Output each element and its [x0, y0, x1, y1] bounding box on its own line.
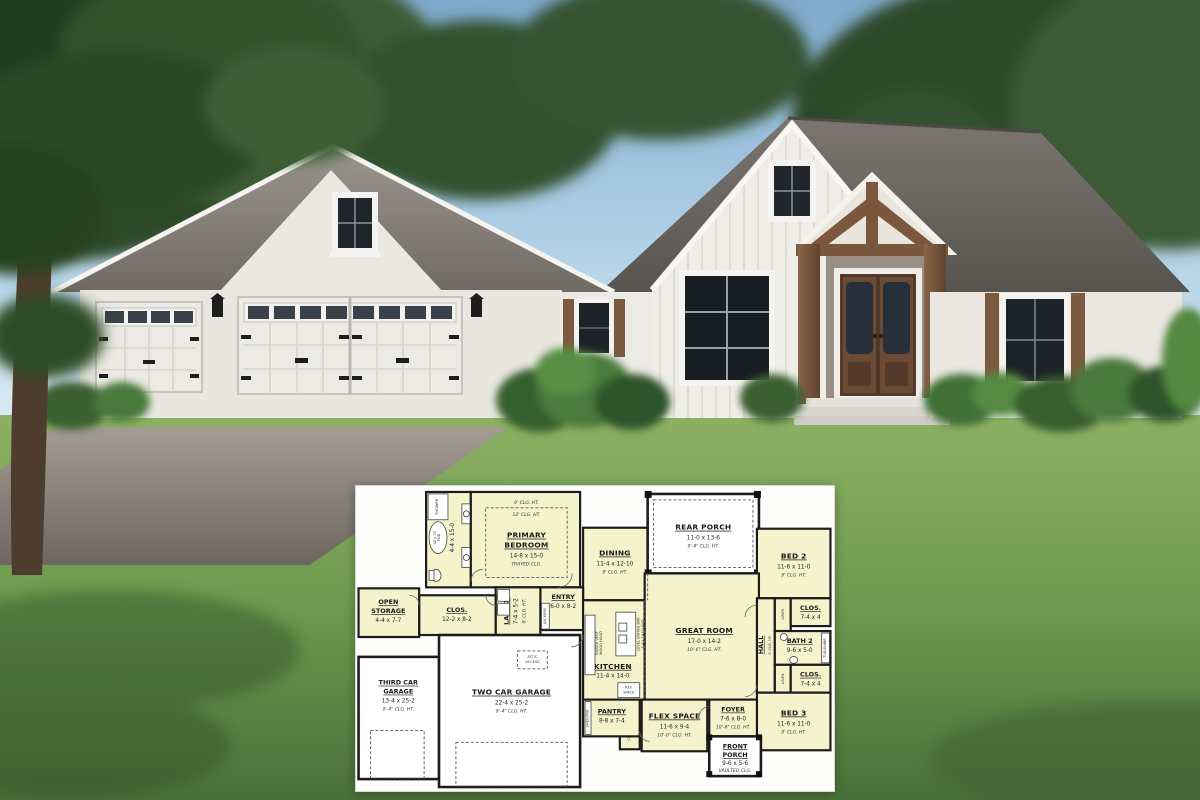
- room-dims: 4-4 x 15-0: [450, 523, 456, 553]
- front-door: [834, 268, 922, 398]
- shower-label: SHOWER: [435, 498, 439, 515]
- room-name: ENTRY: [551, 593, 575, 601]
- hall: HALL 9' CLG. HT.: [757, 598, 775, 692]
- room-name: FOYER: [721, 706, 745, 714]
- room-dims: 7-6 x 8-0: [720, 716, 746, 722]
- double-garage-door: [238, 297, 462, 394]
- center-window: [679, 270, 775, 386]
- room-closet-primary: CLOS. 12-2 x 8-2: [419, 595, 495, 635]
- room-name: GREAT ROOM: [676, 626, 734, 635]
- lockers-label: LOCKERS: [543, 607, 547, 624]
- room-name: TWO CAR GARAGE: [472, 688, 551, 697]
- room-name: BATH 2: [787, 637, 813, 645]
- tray-ceiling-note: 12' CLG. HT.: [513, 512, 541, 518]
- single-garage-door: [96, 302, 202, 392]
- eating-bar-label: LEVEL EATING BAR: [637, 617, 641, 651]
- room-dims: 17-0 x 14-2: [688, 639, 721, 645]
- room-name: LINEN: [781, 673, 785, 684]
- room-dims: 4-4 x 7-7: [375, 618, 401, 624]
- ceiling-note: 9' CLG. HT.: [514, 500, 539, 506]
- garage-attic-window: [330, 192, 380, 257]
- room-foyer: FOYER 7-6 x 8-0 10'-6" CLG. HT.: [709, 700, 757, 737]
- floor-plan: BATH 4-4 x 15-0 SHOWER 42 x 72 TUB 9' CL…: [355, 485, 835, 792]
- room-name: OPEN: [378, 598, 398, 606]
- closet-bed3: CLOS. 7-4 x 4: [791, 665, 831, 693]
- room-pantry: PANTRY 8-8 x 7-4 SHELVING: [583, 700, 640, 737]
- room-great-room: GREAT ROOM 17-0 x 14-2 10'-6" CLG. HT.: [645, 573, 759, 699]
- room-note: 10'-6" CLG. HT.: [657, 732, 692, 738]
- hood-label2: WOOD HOOD: [599, 631, 603, 655]
- room-dims: 7-4 x 5-2: [514, 598, 520, 624]
- room-dims: 22-4 x 25-2: [495, 701, 528, 707]
- room-laundry: LAUND. 7-4 x 5-2 9' CLG. HT.: [496, 587, 541, 635]
- room-flex-space: FLEX SPACE 11-6 x 9-4 10'-6" CLG. HT.: [642, 700, 708, 752]
- room-dims: 11-6 x 11-0: [777, 721, 810, 727]
- room-dims: 9-6 x 5-0: [787, 648, 813, 654]
- two-car-garage: TWO CAR GARAGE 22-4 x 25-2 9'-4" CLG. HT…: [439, 635, 580, 787]
- center-attic-window: [768, 160, 816, 222]
- room-dims: 11-4 x 12-10: [596, 561, 633, 567]
- front-porch: FRONT PORCH 9-6 x 5-6 VAULTED CLG.: [706, 734, 762, 777]
- room-name: BED 2: [781, 552, 807, 561]
- room-dims: 8-8 x 7-4: [599, 718, 625, 724]
- room-bed2: BED 2 11-6 x 11-0 9' CLG. HT.: [757, 529, 831, 599]
- room-name: THIRD CAR: [379, 679, 418, 687]
- room-primary-bedroom: 9' CLG. HT. 12' CLG. HT. PRIMARY BEDROOM…: [471, 492, 580, 587]
- screenshot-root: BATH 4-4 x 15-0 SHOWER 42 x 72 TUB 9' CL…: [0, 0, 1200, 800]
- room-note: 10'-6" CLG. HT.: [716, 724, 751, 730]
- attic-access-label: ATTIC: [527, 655, 538, 659]
- mid-window-shutter-right: [614, 299, 625, 357]
- room-note: 9' CLG. HT.: [768, 635, 772, 655]
- room-note: 9' CLG. HT.: [521, 598, 527, 623]
- room-dims: 7-4 x 4: [801, 682, 821, 688]
- room-name: FRONT: [723, 742, 748, 750]
- room-name: LINEN: [781, 609, 785, 620]
- room-name: PANTRY: [598, 708, 626, 716]
- porch-post-left: [798, 244, 820, 404]
- room-dims: 14-8 x 15-0: [510, 554, 543, 560]
- room-note: TRAYED CLG.: [511, 561, 541, 567]
- room-note: 9'-4" CLG. HT.: [496, 709, 528, 715]
- room-name: CLOS.: [800, 671, 821, 679]
- tub-label2: TUB: [437, 533, 441, 542]
- room-note: 9'-4" CLG. HT.: [688, 544, 720, 550]
- room-bath: BATH 4-4 x 15-0 SHOWER 42 x 72 TUB: [426, 492, 471, 587]
- room-dims: 11-6 x 9-4: [660, 724, 690, 730]
- room-name: HALL: [757, 636, 765, 655]
- room-note: 9'-4" CLG. HT.: [383, 707, 415, 713]
- room-note: 10'-6" CLG. HT.: [687, 647, 722, 653]
- room-name2: GARAGE: [383, 688, 413, 696]
- room-name: CLOS.: [446, 606, 467, 614]
- ref-space-label2: SPACE: [623, 691, 635, 695]
- room-name: CLOS.: [800, 604, 821, 612]
- room-note: 9' CLG. HT.: [781, 729, 806, 735]
- room-dims: 6-0 x 8-2: [550, 604, 576, 610]
- room-name: FLEX SPACE: [649, 711, 701, 720]
- room-name2: STORAGE: [371, 607, 405, 615]
- room-name: KITCHEN: [594, 662, 632, 671]
- room-dining: DINING 11-4 x 12-10 9' CLG. HT.: [583, 528, 648, 601]
- room-dims: 11-0 x 13-6: [687, 536, 720, 542]
- attic-access-label2: ACCESS: [525, 660, 540, 664]
- room-name: PRIMARY: [507, 531, 547, 540]
- room-note: 9' CLG. HT.: [781, 572, 806, 578]
- room-name: DINING: [599, 549, 630, 558]
- room-dims: 11-6 x 11-0: [777, 564, 810, 570]
- room-dims: 7-4 x 4: [801, 615, 821, 621]
- room-name: BED 3: [781, 708, 807, 717]
- room-dims: 9-6 x 5-6: [722, 761, 748, 767]
- linen-2: LINEN: [775, 665, 791, 693]
- room-name2: PORCH: [722, 751, 747, 759]
- room-note: 9' CLG. HT.: [602, 569, 627, 575]
- linen-1: LINEN: [775, 598, 791, 631]
- room-dims: 13-4 x 25-2: [382, 699, 415, 705]
- room-name2: BEDROOM: [504, 541, 548, 550]
- room-kitchen: KITCHEN 11-4 x 14-0 RAISED VENT WOOD HOO…: [583, 600, 645, 699]
- rear-porch: REAR PORCH 11-0 x 13-6 9'-4" CLG. HT.: [645, 491, 761, 576]
- tub-shwr-label: TUB/SHWR: [823, 638, 827, 659]
- room-dims: 12-2 x 8-2: [442, 617, 472, 623]
- room-note: VAULTED CLG.: [719, 768, 752, 774]
- shelving-label: SHELVING: [586, 709, 590, 727]
- third-car-garage: THIRD CAR GARAGE 13-4 x 25-2 9'-4" CLG. …: [359, 657, 439, 779]
- ref-space-label: REF.: [625, 686, 632, 690]
- room-bed3: BED 3 11-6 x 11-0 9' CLG. HT.: [757, 693, 831, 751]
- closet-bed2: CLOS. 7-4 x 4: [791, 598, 831, 626]
- floor-plan-svg: BATH 4-4 x 15-0 SHOWER 42 x 72 TUB 9' CL…: [356, 486, 834, 791]
- room-bath2: BATH 2 9-6 x 5-0 TUB/SHWR: [775, 631, 831, 665]
- room-name: REAR PORCH: [675, 523, 731, 532]
- mid-window: [563, 299, 625, 357]
- room-dims: 11-4 x 14-0: [596, 674, 629, 680]
